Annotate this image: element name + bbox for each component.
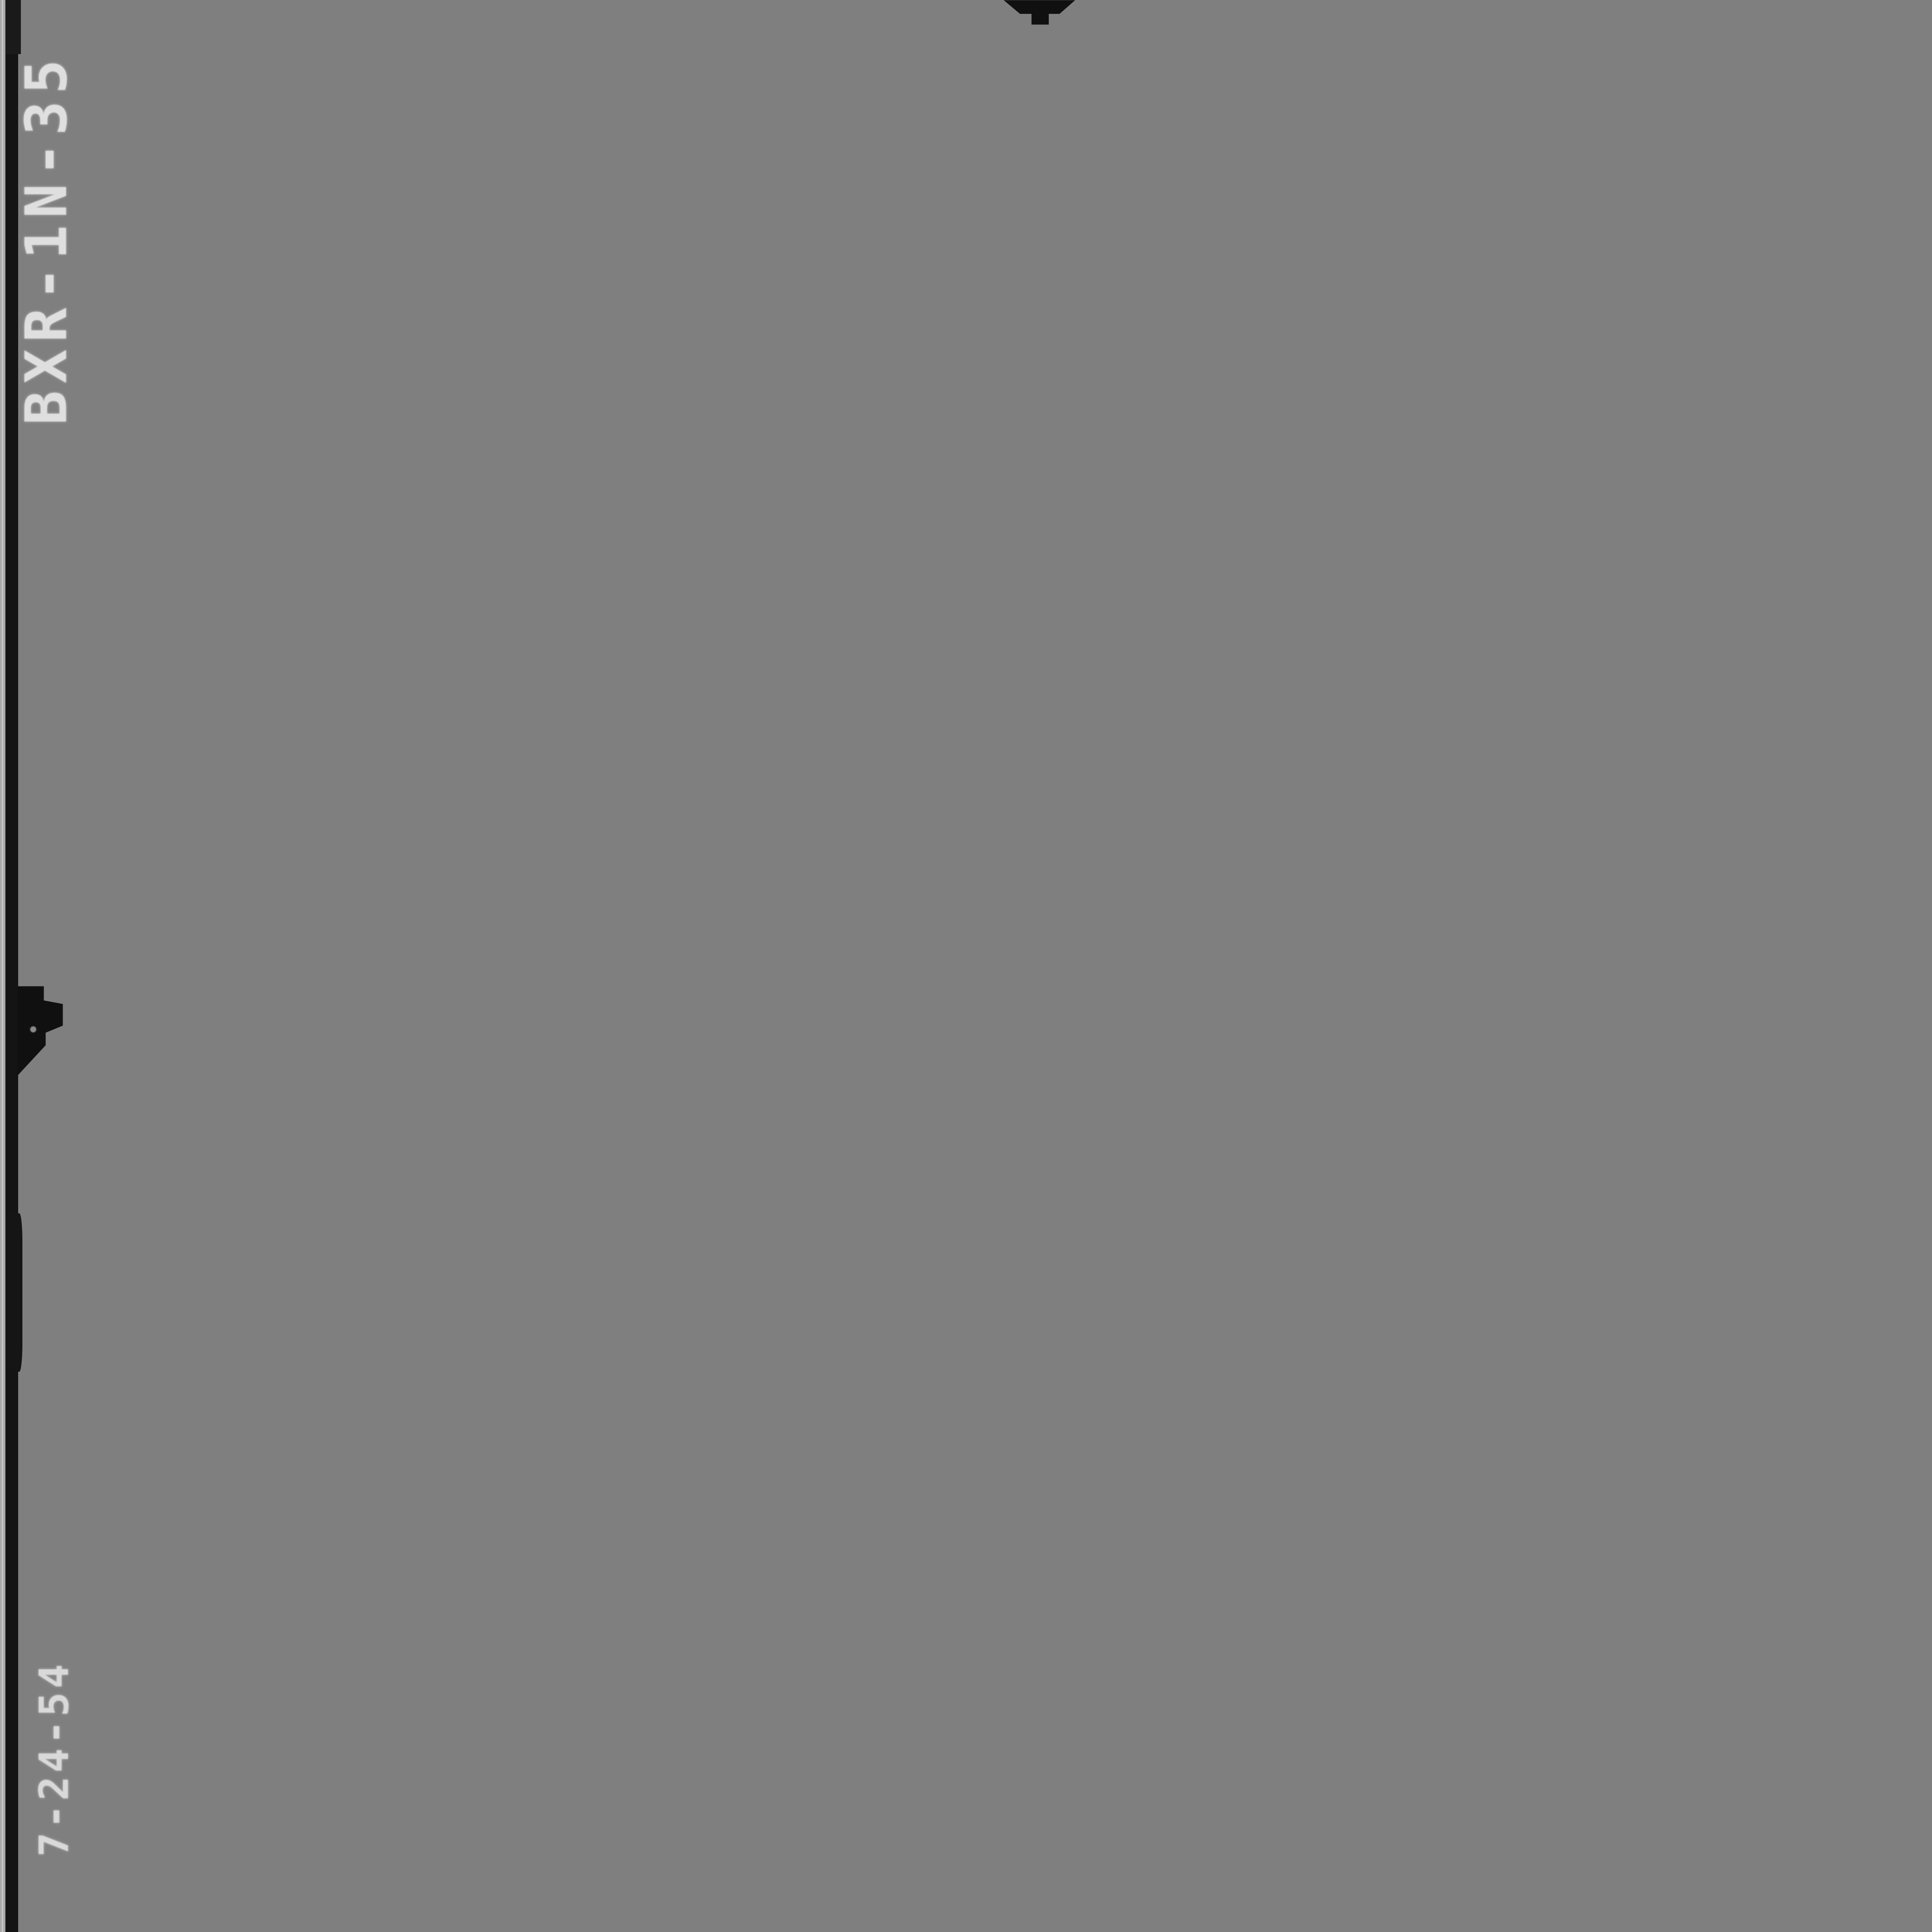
- film-id-stamp: BXR-1N-35: [17, 26, 75, 451]
- date-stamp: 7-24-54: [34, 1659, 75, 1858]
- fiducial-marks: [0, 0, 1932, 1932]
- fiducial-top: [1003, 0, 1075, 25]
- fiducial-left: [17, 986, 63, 1076]
- fiducial-left-dot: [30, 1026, 36, 1032]
- aerial-photo-scan: BXR-1N-35 7-24-54: [0, 0, 1932, 1932]
